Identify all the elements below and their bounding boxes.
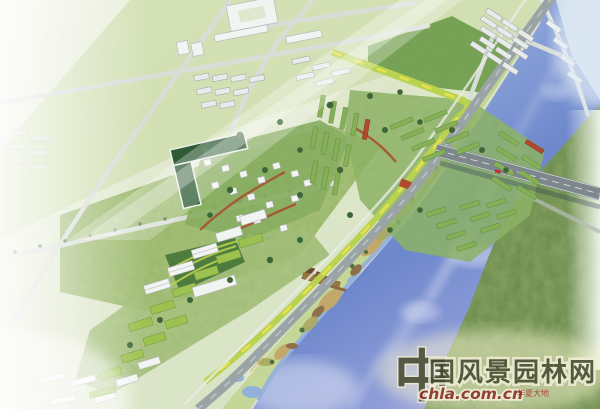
watermark-site-name: 国风景园林网 bbox=[429, 358, 597, 388]
watermark-tagline: 华夏大地 bbox=[517, 388, 549, 398]
masterplan-scene: 中 国风景园林网 chla.com.cn 华夏大地 bbox=[0, 0, 600, 409]
watermark-url: chla.com.cn bbox=[419, 385, 523, 403]
aerial-rendering: 中 国风景园林网 chla.com.cn 华夏大地 bbox=[0, 0, 600, 409]
far-bank-fade bbox=[566, 110, 600, 370]
